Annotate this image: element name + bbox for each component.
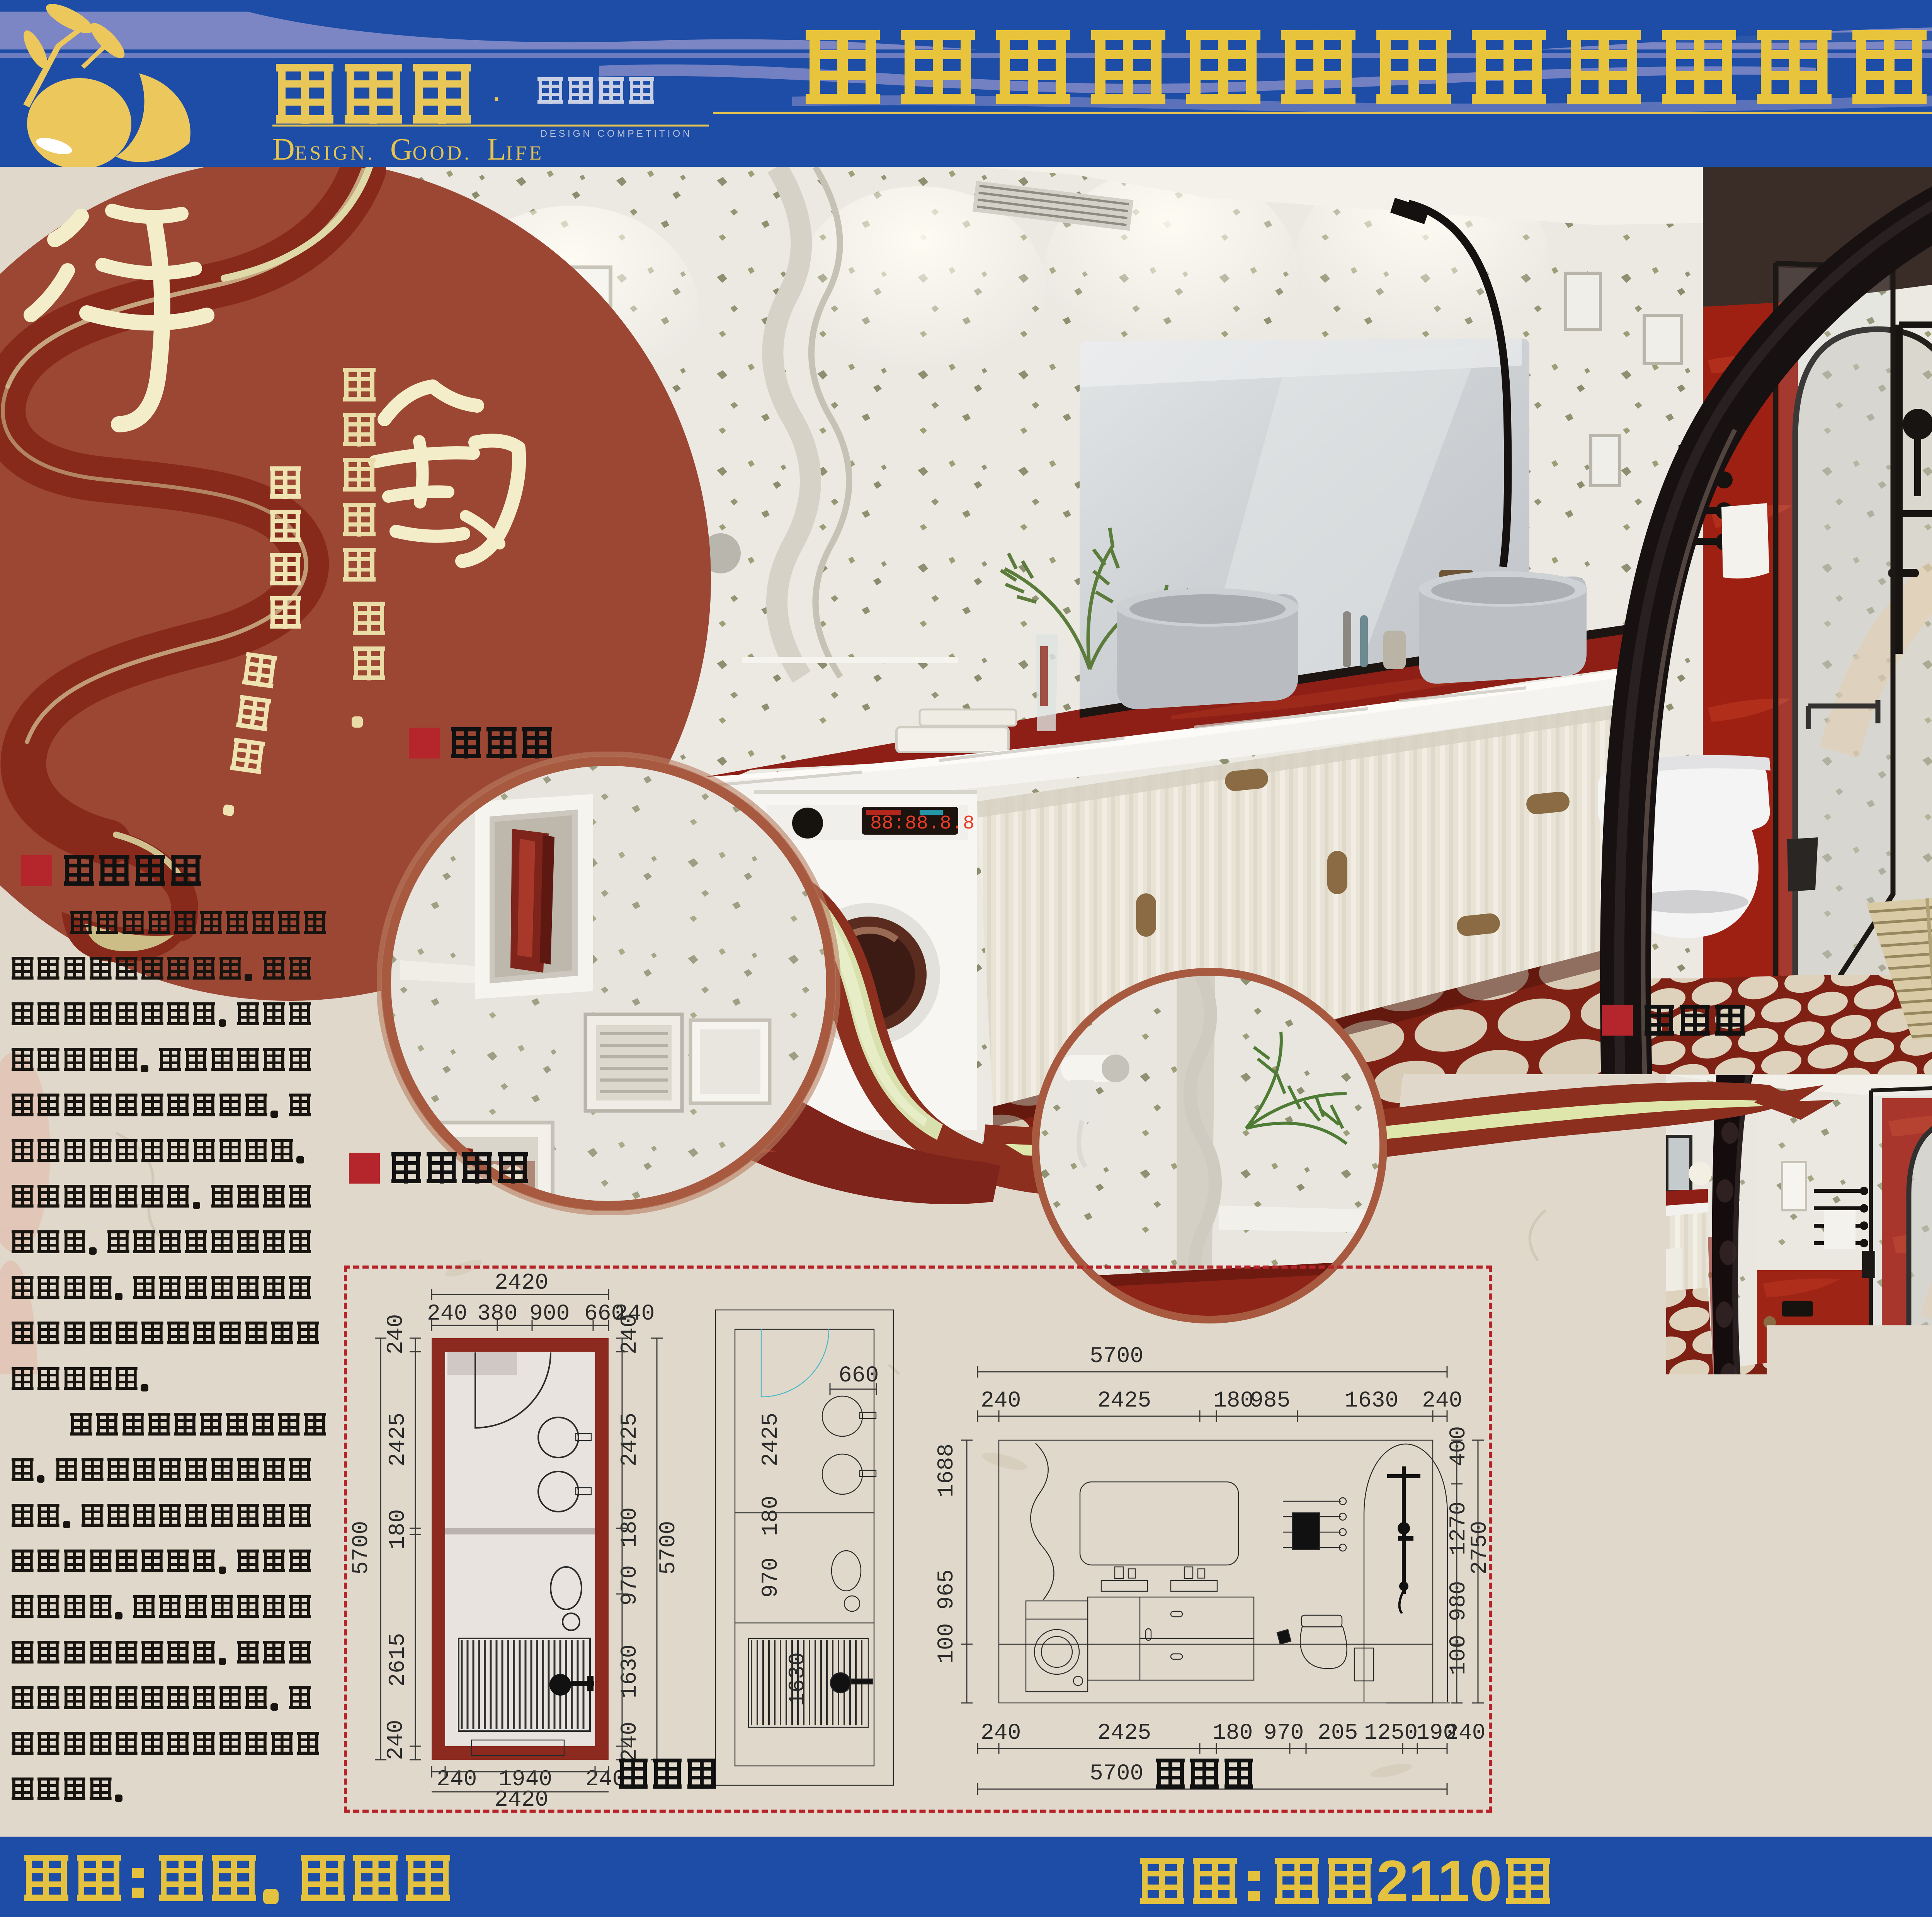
- svg-text:1630: 1630: [786, 1652, 811, 1706]
- svg-text:240: 240: [437, 1767, 477, 1792]
- svg-text:180: 180: [759, 1496, 784, 1536]
- svg-text:205: 205: [1318, 1721, 1358, 1746]
- svg-text:5700: 5700: [656, 1521, 681, 1575]
- svg-text:900: 900: [529, 1301, 570, 1327]
- svg-text:240: 240: [1422, 1388, 1462, 1414]
- svg-text:240: 240: [617, 1314, 643, 1354]
- svg-text:2425: 2425: [617, 1413, 643, 1466]
- svg-text:1630: 1630: [617, 1645, 643, 1698]
- svg-text:2425: 2425: [386, 1413, 411, 1466]
- svg-text:400: 400: [1446, 1426, 1471, 1466]
- svg-text:2420: 2420: [495, 1271, 548, 1296]
- svg-text:2615: 2615: [386, 1633, 411, 1687]
- svg-text:970: 970: [759, 1558, 784, 1598]
- svg-text:240: 240: [981, 1721, 1021, 1746]
- svg-text:2425: 2425: [1097, 1388, 1151, 1414]
- svg-text:985: 985: [1250, 1388, 1290, 1414]
- svg-text:5700: 5700: [1090, 1344, 1143, 1369]
- svg-text:180: 180: [1213, 1721, 1253, 1746]
- svg-text:240: 240: [384, 1314, 409, 1354]
- svg-text:240: 240: [1445, 1721, 1485, 1746]
- svg-text:2750: 2750: [1468, 1521, 1486, 1575]
- svg-text:1250: 1250: [1364, 1721, 1418, 1746]
- svg-text:1688: 1688: [934, 1444, 959, 1497]
- svg-text:660: 660: [838, 1363, 879, 1388]
- svg-text:2420: 2420: [495, 1788, 548, 1806]
- svg-text:1630: 1630: [1345, 1388, 1398, 1414]
- svg-text:180: 180: [617, 1507, 643, 1548]
- svg-text:180: 180: [386, 1509, 411, 1550]
- svg-text:240: 240: [981, 1388, 1021, 1414]
- svg-text:240: 240: [384, 1720, 409, 1760]
- svg-text:100 980: 100 980: [1446, 1581, 1471, 1675]
- svg-text:970: 970: [617, 1565, 643, 1606]
- svg-text:100 965: 100 965: [934, 1569, 959, 1664]
- svg-text:2425: 2425: [1097, 1721, 1151, 1746]
- svg-text:180: 180: [1213, 1388, 1253, 1414]
- svg-text:5700: 5700: [1090, 1761, 1143, 1786]
- svg-text:2425: 2425: [759, 1413, 784, 1466]
- svg-text:240: 240: [427, 1301, 467, 1327]
- svg-text:970: 970: [1264, 1721, 1304, 1746]
